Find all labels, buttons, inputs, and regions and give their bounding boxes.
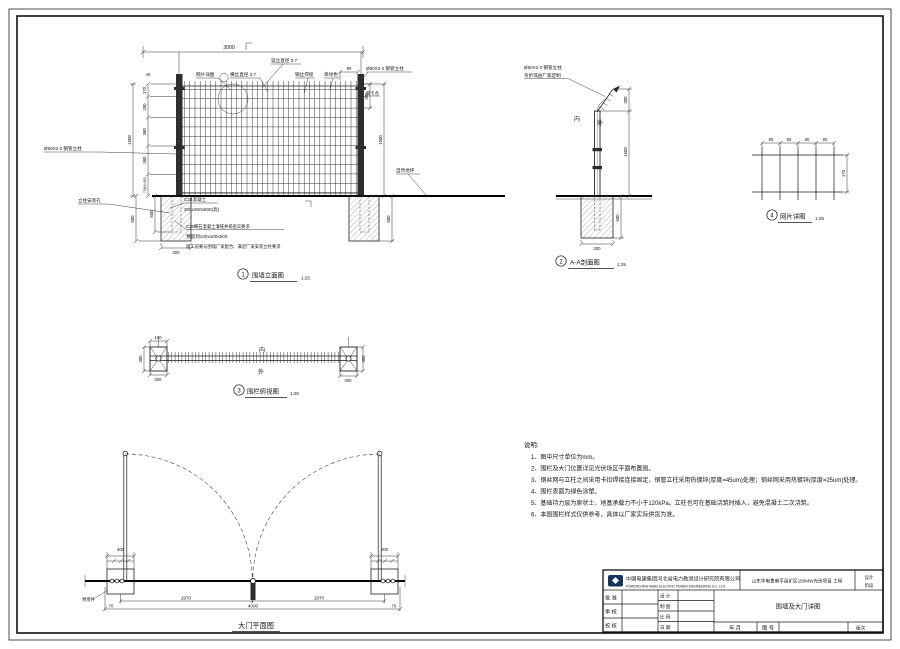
label-fine-concrete: C25细石混凝土灌缝并捣密实要求: [186, 223, 250, 230]
design-stage-line2: 阶段: [865, 582, 874, 589]
note-5: 5、基础持力层为原状土，地基承载力不小于120kPa。立柱也可在基础浇筑时插入，…: [531, 499, 813, 507]
label-sec-inside: 内: [574, 115, 580, 123]
bottom-year-month: 年 月: [729, 624, 741, 632]
dim-3000: 3000: [223, 45, 235, 51]
view1-scale: 1:25: [301, 276, 310, 281]
view4-scale: 1:25: [815, 216, 824, 221]
note-4: 4、围栏表面为绿色涂塑。: [531, 488, 600, 496]
dim-gate-400l: 400: [117, 547, 125, 552]
dim-leaf-right: 1970: [314, 596, 325, 601]
project-name: 山东华电鲁南平邑矿区150MW光伏项目 工程: [752, 578, 843, 585]
label-plan-inside: 内: [259, 346, 265, 354]
view3-number: 3: [237, 389, 241, 395]
view4-title: 网片详图: [780, 212, 806, 221]
design-stage-line1: 设计: [865, 574, 874, 581]
label-weld: 钢丝焊接: [295, 71, 314, 78]
label-plan-outside: 外: [258, 368, 264, 376]
note-2: 2、围栏及大门位置详见光伏场区平面布置图。: [531, 465, 654, 473]
note-6: 6、本图围栏样式仅供参考，具体以厂家实际供货为准。: [531, 511, 678, 519]
label-vert-wire: 竖丝直径 3.7: [271, 57, 297, 63]
label-sec-bend: 弯折或由厂家定制: [524, 72, 561, 79]
label-ground: 自然地坪: [396, 167, 415, 174]
dim-300-found: 300: [172, 250, 180, 255]
fence-top-view: 100 300 300 300 300 内 外 3 围栏俯视图 1:25: [138, 335, 366, 398]
label-post-right: Ø50X2.0 钢管立柱: [366, 65, 404, 72]
dim-plan-300r: 300: [361, 355, 366, 363]
label-post-left: Ø50X2.0 钢管立柱: [44, 145, 82, 152]
row-check-label: 校 核: [605, 622, 617, 630]
note-1: 1、图中尺寸单位为mm。: [531, 453, 598, 461]
dim-leaf-left: 1970: [181, 596, 192, 601]
label-horiz-wire: 横丝直径 3.7: [230, 71, 256, 78]
col-draft-label: 制 图: [660, 603, 671, 610]
dim-90: 90: [347, 66, 352, 71]
dim-mesh-90b: 90: [787, 137, 792, 142]
dim-plan-300rb: 300: [344, 378, 352, 383]
drawing-sheet: 3000 40 1500 170 280 380 380 75@4=300 60…: [0, 0, 900, 649]
dim-1500-right: 1500: [378, 135, 383, 145]
label-install-hole: 立柱安装孔: [78, 197, 101, 204]
dim-280: 280: [142, 103, 147, 111]
revision-label: 版次: [856, 625, 866, 632]
dim-plan-300lb: 300: [154, 377, 162, 382]
row-review-label: 审 核: [605, 608, 617, 616]
col-design-label: 设 计: [660, 593, 671, 600]
dim-380a: 380: [142, 128, 147, 136]
row-approve-label: 批 准: [605, 594, 617, 602]
company-name-cn: 中国电建集团河北省电力勘测设计研究院有限公司: [626, 575, 740, 583]
label-reserved-hole: 预留洞100x100x500: [186, 233, 228, 240]
mesh-panel-detail-view: 90 90 90 90 170 4 网片详图 1:25: [752, 137, 849, 223]
view3-title: 围栏俯视图: [247, 387, 279, 396]
dim-mesh-90a: 90: [769, 137, 774, 142]
dim-sec-300top: 300: [623, 96, 628, 104]
label-coordinate-note: 施工前要与围墙厂家配合、满足厂家安装立柱要求: [186, 243, 281, 250]
dim-mesh-90c: 90: [805, 137, 810, 142]
dim-sec-1500: 1500: [623, 147, 628, 157]
dim-1500-left: 1500: [127, 135, 132, 145]
title-block: 中国电建集团河北省电力勘测设计研究院有限公司 POWERCHINA HEBEI …: [603, 570, 883, 632]
view2-scale: 1:25: [617, 262, 626, 267]
dim-gate-total: 4000: [248, 604, 259, 609]
view2-title: A-A剖面图: [570, 258, 600, 267]
cad-drawing: 3000 40 1500 170 280 380 380 75@4=300 60…: [0, 0, 900, 649]
notes-title: 说明:: [524, 440, 539, 449]
label-sec-post: Ø50X2.0 钢管立柱: [524, 64, 562, 71]
dim-170: 170: [142, 86, 147, 94]
label-c25-concrete: C25混凝土: [184, 196, 207, 203]
view4-number: 4: [770, 214, 774, 220]
notes-block: 说明: 1、图中尺寸单位为mm。 2、围栏及大门位置详见光伏场区平面布置图。 3…: [524, 440, 861, 519]
bottom-drawing-no: 图 号: [762, 625, 774, 632]
view1-title: 围墙立面图: [252, 271, 284, 280]
gate-title: 大门平面图: [238, 621, 274, 630]
dim-gate-70l: 70: [109, 604, 114, 609]
dim-sec-300bot: 300: [593, 246, 601, 251]
view3-scale: 1:25: [290, 391, 299, 396]
dim-600-right: 600: [386, 215, 391, 223]
dim-40: 40: [146, 72, 151, 77]
dim-75x4: 75@4=300: [143, 177, 147, 193]
dim-plan-300l: 300: [138, 355, 143, 363]
col-scale-label: 比 例: [660, 614, 671, 621]
dim-gate-70r: 70: [392, 604, 397, 609]
col-date-label: 日 期: [660, 625, 671, 631]
label-sec-outside: 外: [597, 119, 603, 127]
company-name-en: POWERCHINA HEBEI ELECTRIC POWER ENGINEER…: [626, 585, 726, 589]
dim-600-left: 600: [130, 215, 135, 223]
dim-gate-400r: 400: [381, 547, 389, 552]
dim-plan-100: 100: [154, 335, 162, 340]
dim-500: 500: [149, 210, 154, 218]
label-mesh-callout: 网片详图: [196, 71, 215, 78]
note-3: 3、钢丝网与立柱之间采用卡扣焊接连接固定，钢管立柱采用热镀锌(厚度=45um)处…: [531, 476, 861, 484]
label-green-color: 草绿色: [324, 71, 338, 78]
gate-plan-view: 400 400 预埋件 1970 1970 4000 70 70 大门平面图: [82, 451, 405, 631]
section-aa-view: 300 1500 600 300 Ø50X2.0 钢管立柱 弯折或由厂家定制 内…: [524, 64, 652, 269]
fence-elevation-view: 3000 40 1500 170 280 380 380 75@4=300 60…: [44, 43, 505, 282]
drawing-title: 围墙及大门详图: [776, 602, 821, 611]
view2-number: 2: [559, 260, 563, 266]
dim-380b: 380: [142, 156, 147, 164]
label-embed-part: 预埋件: [82, 596, 96, 603]
dim-mesh-90d: 90: [823, 137, 828, 142]
label-c25-size: 300x300x600(高): [184, 206, 220, 213]
dim-mesh-170: 170: [841, 169, 846, 177]
dim-sec-600: 600: [615, 214, 620, 222]
view1-number: 1: [241, 273, 245, 279]
